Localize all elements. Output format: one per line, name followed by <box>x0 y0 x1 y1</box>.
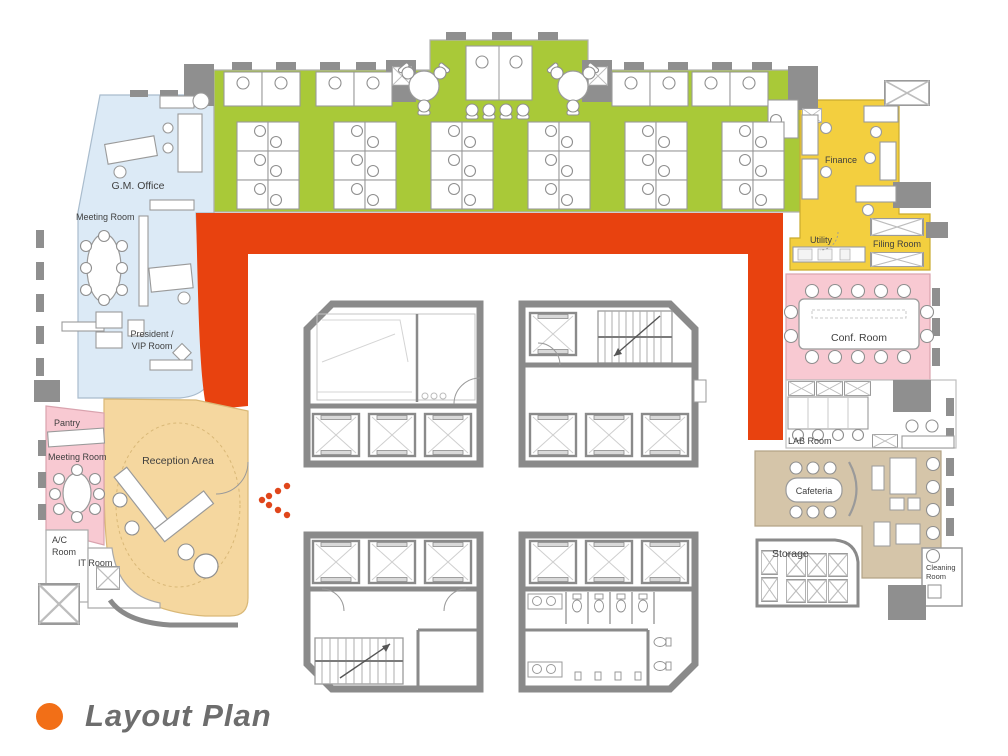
elevator <box>369 414 415 456</box>
storage-pallet <box>807 580 826 603</box>
core-lower-right <box>522 535 695 689</box>
service-wall-block <box>888 585 926 620</box>
ac-room-label-2: Room <box>52 547 76 557</box>
cleaning-room-label-1: Cleaning <box>926 563 956 572</box>
page-title: Layout Plan <box>85 698 272 734</box>
gm-office-label: G.M. Office <box>112 180 165 192</box>
storage-pallet <box>828 554 847 577</box>
meeting-room-lower-label: Meeting Room <box>48 452 107 462</box>
cleaning-room-label-2: Room <box>926 572 946 581</box>
elevator <box>642 414 688 456</box>
elevator <box>530 541 576 583</box>
it-room-label: IT Room <box>78 558 112 568</box>
cafeteria-label: Cafeteria <box>796 486 833 496</box>
core-upper-left <box>307 304 480 464</box>
elevator <box>586 541 632 583</box>
lab-room-label: LAB Room <box>788 436 832 446</box>
president-vip-label-1: President / <box>130 329 174 339</box>
stair-upper <box>598 311 672 363</box>
it-equipment-rack <box>96 567 119 590</box>
elevator <box>530 414 576 456</box>
elevator <box>425 414 471 456</box>
meeting-room-upper-label: Meeting Room <box>76 212 135 222</box>
storage-pallet <box>761 578 777 601</box>
utility-label: Utility <box>810 235 832 245</box>
cleaning-sink <box>928 585 941 598</box>
ac-room-label-1: A/C <box>52 535 68 545</box>
elevator <box>369 541 415 583</box>
filing-room-label: Filing Room <box>873 239 921 249</box>
title-bullet-dot <box>36 703 63 730</box>
layout-plan-page: G.M. Office Meeting Room President / VIP… <box>0 0 1008 756</box>
storage-pallet <box>786 580 805 603</box>
storage-label: Storage <box>772 548 809 560</box>
entrance-direction-dots <box>259 483 290 518</box>
floor-plan: G.M. Office Meeting Room President / VIP… <box>0 0 1008 756</box>
elevator <box>425 541 471 583</box>
storage-pallet <box>807 554 826 577</box>
elevator <box>586 414 632 456</box>
meeting-room-lower-furniture <box>50 465 105 523</box>
core-upper-right <box>522 304 706 464</box>
reception-label: Reception Area <box>142 455 214 467</box>
pantry-furniture <box>48 428 105 447</box>
storage-pallet <box>828 580 847 603</box>
elevator <box>313 541 359 583</box>
elevator <box>642 541 688 583</box>
pantry-label: Pantry <box>54 418 81 428</box>
finance-label: Finance <box>825 155 857 165</box>
core-lower-left <box>307 535 480 689</box>
conf-room-label: Conf. Room <box>831 332 887 344</box>
president-vip-label-2: VIP Room <box>132 341 173 351</box>
stair-lower <box>315 638 403 684</box>
title-block: Layout Plan <box>36 698 272 734</box>
elevator <box>313 414 359 456</box>
